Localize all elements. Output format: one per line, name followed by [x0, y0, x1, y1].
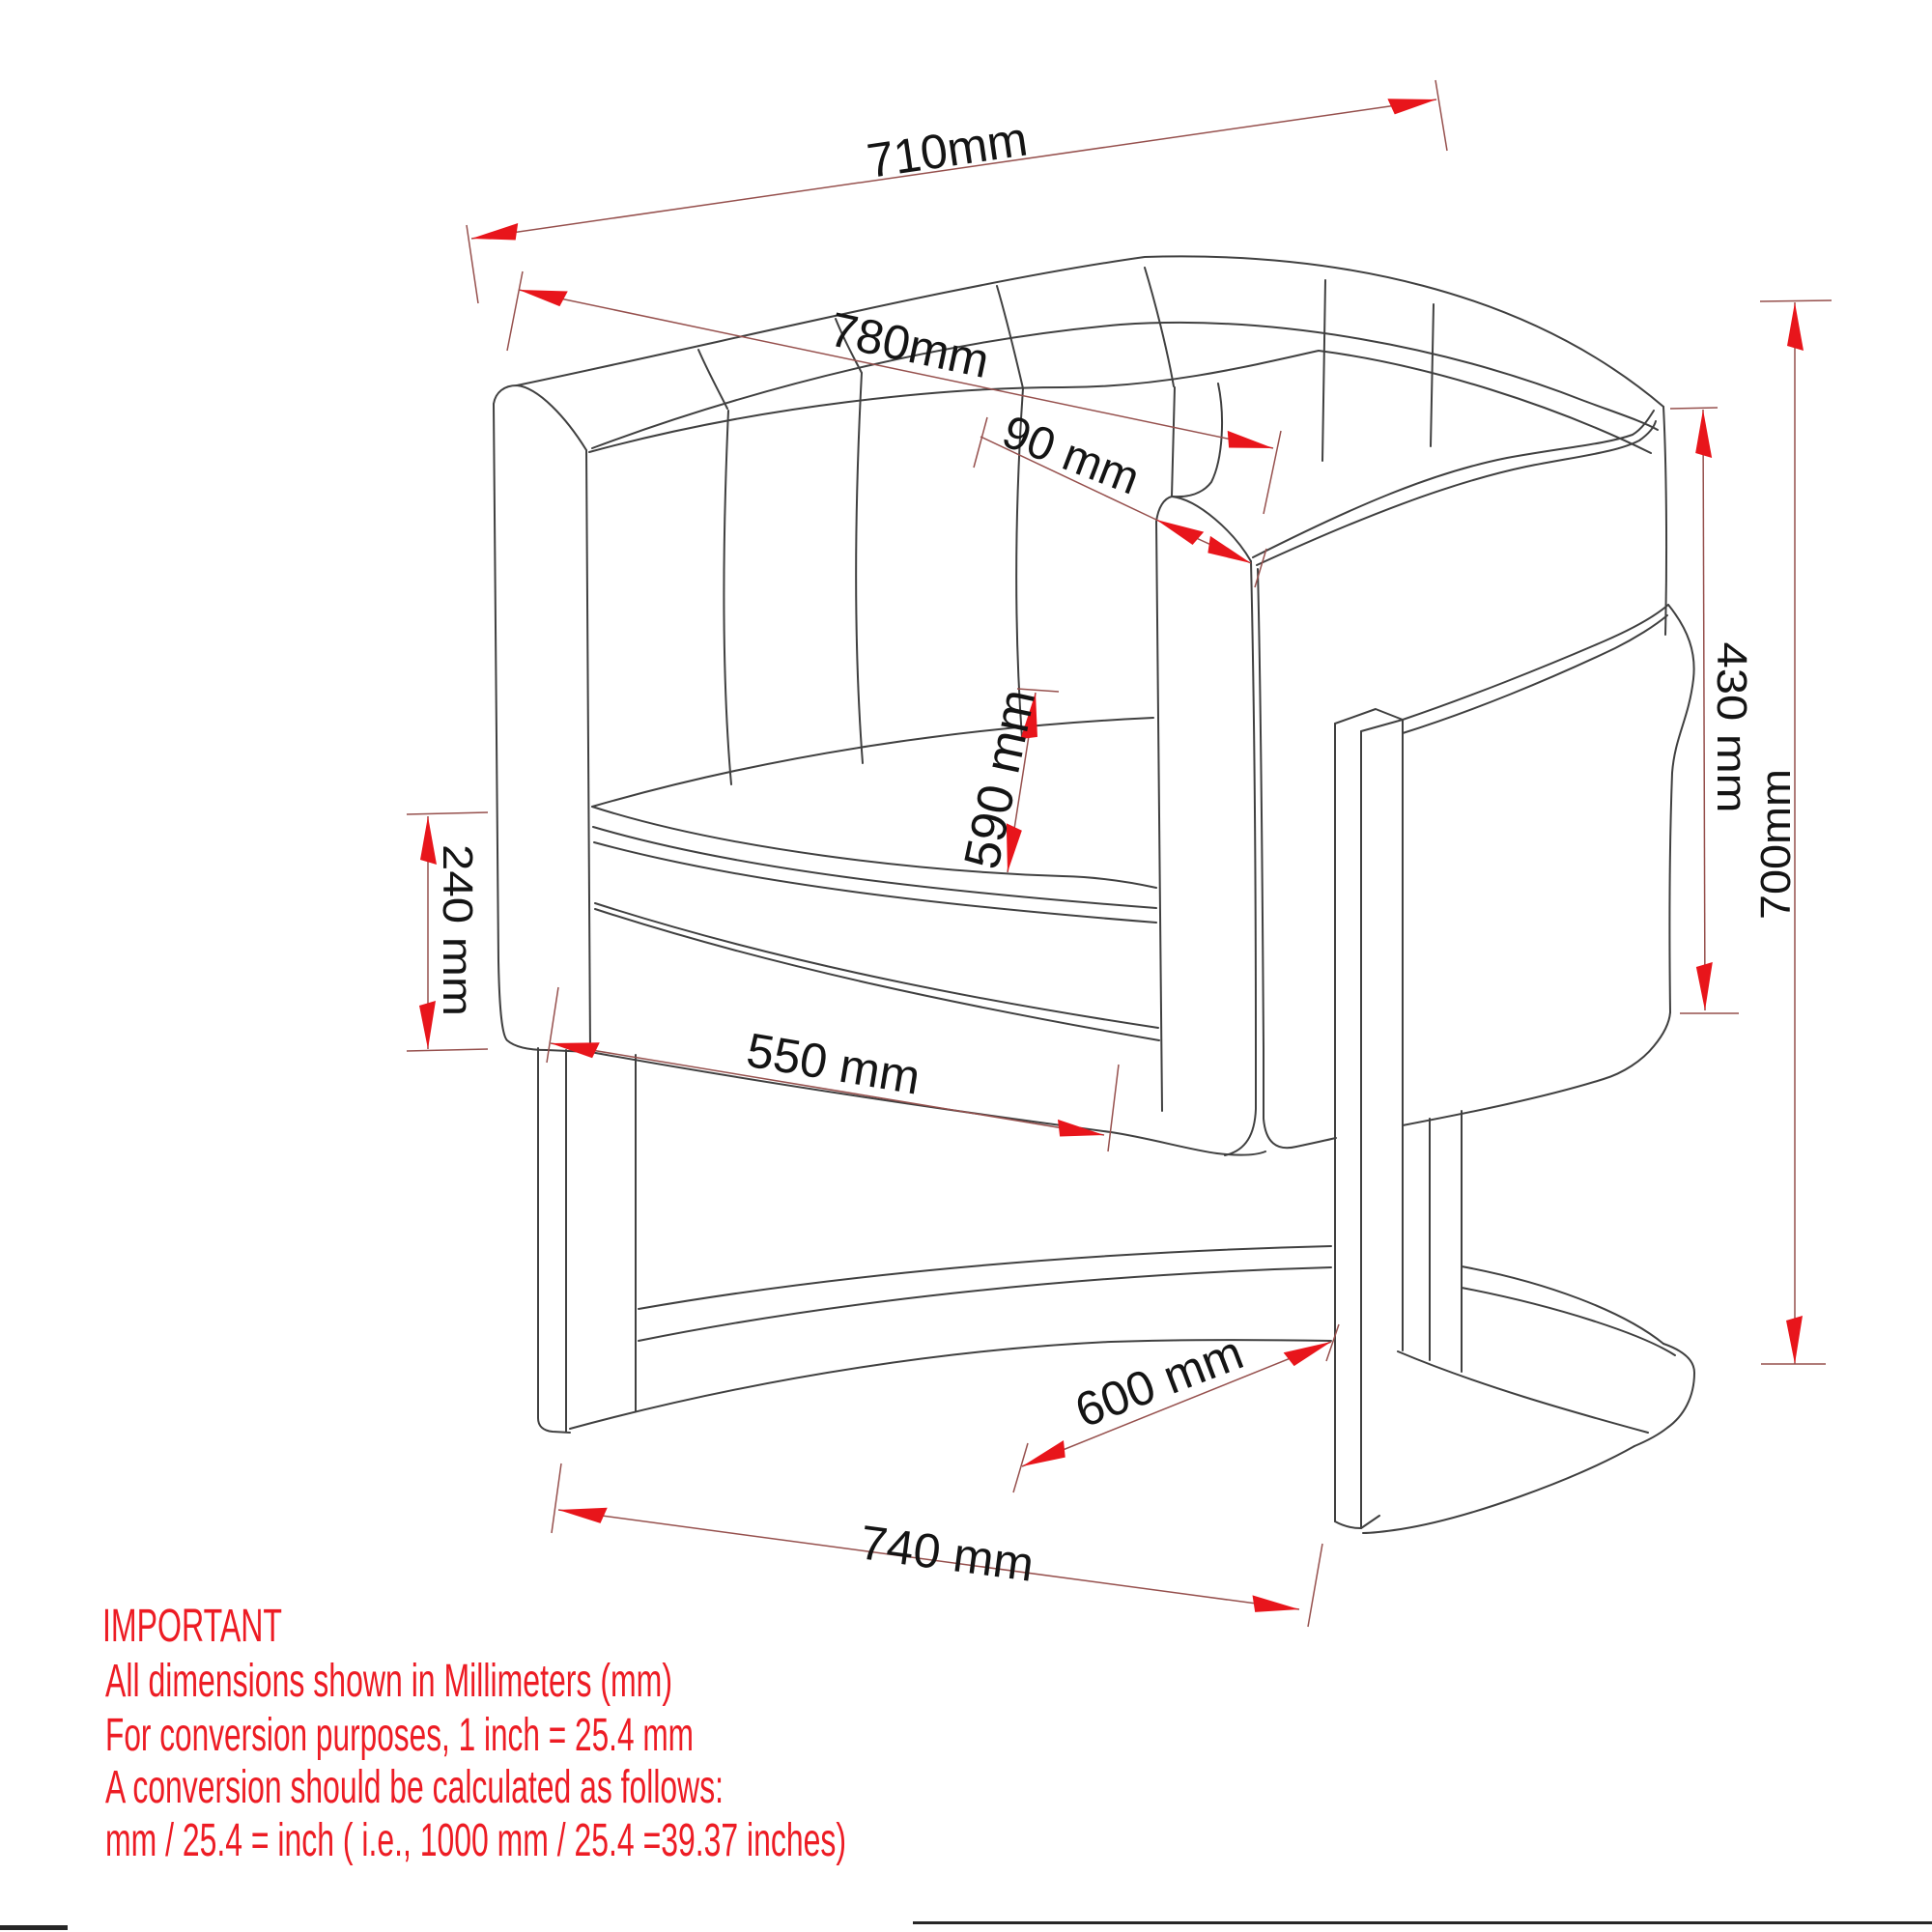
svg-text:A conversion should be calcula: A conversion should be calculated as fol…	[105, 1762, 724, 1813]
svg-text:740 mm: 740 mm	[857, 1515, 1037, 1591]
svg-text:240 mm: 240 mm	[434, 844, 481, 1016]
svg-text:430 mm: 430 mm	[1708, 642, 1755, 813]
svg-text:For conversion purposes, 1 inc: For conversion purposes, 1 inch = 25.4 m…	[105, 1710, 694, 1761]
svg-text:590 mm: 590 mm	[953, 685, 1046, 874]
svg-text:780mm: 780mm	[825, 302, 994, 388]
svg-text:mm / 25.4 = inch ( i.e., 1000: mm / 25.4 = inch ( i.e., 1000 mm / 25.4 …	[105, 1815, 846, 1866]
svg-text:710mm: 710mm	[864, 111, 1031, 187]
svg-text:All dimensions shown in Millim: All dimensions shown in Millimeters (mm)	[105, 1656, 672, 1707]
svg-text:IMPORTANT: IMPORTANT	[102, 1601, 282, 1652]
svg-text:700mm: 700mm	[1752, 769, 1800, 920]
